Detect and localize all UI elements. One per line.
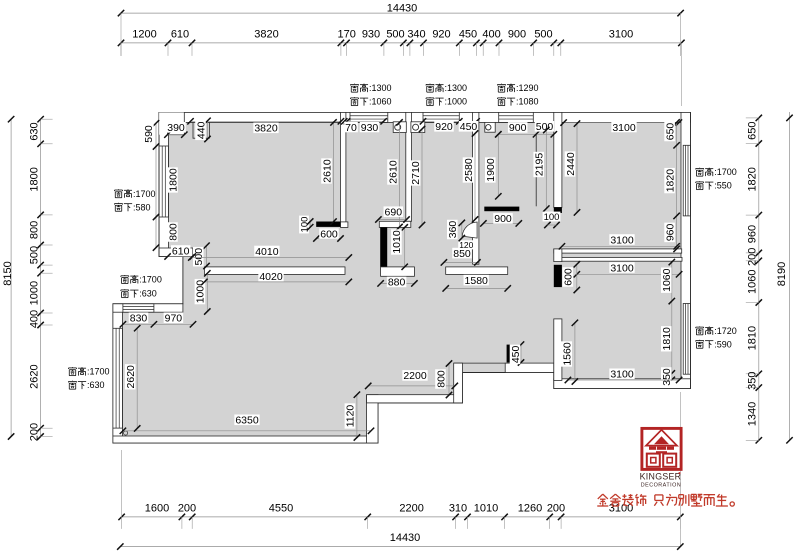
svg-text:1580: 1580 xyxy=(465,275,489,287)
svg-text:400: 400 xyxy=(482,28,500,40)
svg-text:900: 900 xyxy=(509,122,527,134)
svg-text:4020: 4020 xyxy=(259,271,283,283)
svg-text:1340: 1340 xyxy=(747,402,759,426)
svg-text:2200: 2200 xyxy=(399,503,423,515)
svg-text:2610: 2610 xyxy=(387,160,399,184)
svg-text:8150: 8150 xyxy=(2,261,14,285)
svg-text:650: 650 xyxy=(747,122,759,140)
svg-text:600: 600 xyxy=(320,228,338,240)
svg-text:2440: 2440 xyxy=(565,152,577,176)
svg-text:1800: 1800 xyxy=(28,167,40,191)
svg-text:800: 800 xyxy=(167,223,179,241)
svg-text::1700: :1700 xyxy=(133,189,156,199)
svg-text::1080: :1080 xyxy=(516,97,539,107)
svg-text::1300: :1300 xyxy=(369,83,392,93)
svg-text:900: 900 xyxy=(494,213,512,225)
svg-text:600: 600 xyxy=(563,268,575,286)
svg-text:1060: 1060 xyxy=(747,269,759,293)
svg-text:1120: 1120 xyxy=(345,405,357,428)
svg-text:1810: 1810 xyxy=(747,326,759,350)
svg-text:960: 960 xyxy=(664,223,676,241)
svg-text::1700: :1700 xyxy=(139,275,162,285)
svg-text:8190: 8190 xyxy=(776,262,788,286)
svg-text:2710: 2710 xyxy=(410,161,422,185)
svg-text:610: 610 xyxy=(171,28,189,40)
svg-text:1900: 1900 xyxy=(485,158,497,182)
svg-text:690: 690 xyxy=(385,206,403,218)
svg-text::1060: :1060 xyxy=(369,97,392,107)
svg-text::630: :630 xyxy=(139,289,157,299)
svg-text::1000: :1000 xyxy=(445,97,468,107)
svg-text:1010: 1010 xyxy=(391,230,403,254)
svg-text:14430: 14430 xyxy=(390,532,421,544)
svg-text::1700: :1700 xyxy=(714,167,737,177)
svg-text:960: 960 xyxy=(747,225,759,243)
svg-text::1300: :1300 xyxy=(445,83,468,93)
svg-text:3820: 3820 xyxy=(254,123,278,135)
svg-text:450: 450 xyxy=(460,121,478,133)
svg-text:200: 200 xyxy=(547,503,565,515)
svg-text:1000: 1000 xyxy=(28,281,40,305)
svg-text:350: 350 xyxy=(747,372,759,390)
svg-text:350: 350 xyxy=(661,368,673,386)
svg-text:4010: 4010 xyxy=(255,246,279,258)
svg-text:200: 200 xyxy=(747,248,759,266)
svg-text:14430: 14430 xyxy=(387,3,418,15)
svg-text:930: 930 xyxy=(361,122,379,134)
svg-text:1820: 1820 xyxy=(664,169,676,193)
svg-text:310: 310 xyxy=(449,503,467,515)
svg-text:4550: 4550 xyxy=(269,503,293,515)
svg-text::630: :630 xyxy=(87,380,105,390)
svg-text:120: 120 xyxy=(459,240,473,250)
svg-text:500: 500 xyxy=(534,28,552,40)
svg-text:590: 590 xyxy=(143,125,155,143)
svg-text:6350: 6350 xyxy=(235,415,259,427)
svg-text::1720: :1720 xyxy=(714,326,737,336)
svg-text:170: 170 xyxy=(338,28,356,40)
svg-text:1810: 1810 xyxy=(661,327,673,351)
svg-text:500: 500 xyxy=(193,248,205,266)
svg-text:630: 630 xyxy=(28,122,40,140)
svg-text:3100: 3100 xyxy=(610,369,634,381)
svg-text:1060: 1060 xyxy=(661,268,673,292)
svg-text:450: 450 xyxy=(510,345,522,363)
svg-text:3100: 3100 xyxy=(610,234,634,246)
svg-text:450: 450 xyxy=(459,28,477,40)
svg-text::590: :590 xyxy=(714,339,732,349)
svg-text:DECORATION: DECORATION xyxy=(641,483,682,489)
svg-text:800: 800 xyxy=(435,370,447,388)
svg-text:2200: 2200 xyxy=(403,370,427,382)
svg-text:70: 70 xyxy=(345,122,357,134)
svg-text:500: 500 xyxy=(28,246,40,264)
svg-text::1700: :1700 xyxy=(87,367,110,377)
svg-text:340: 340 xyxy=(407,28,425,40)
svg-text:440: 440 xyxy=(195,121,207,139)
svg-text:200: 200 xyxy=(28,423,40,441)
svg-text:650: 650 xyxy=(664,123,676,141)
svg-text:3820: 3820 xyxy=(254,28,278,40)
svg-text:970: 970 xyxy=(165,312,183,324)
svg-text:2195: 2195 xyxy=(533,153,545,177)
svg-text:500: 500 xyxy=(386,28,404,40)
svg-text::550: :550 xyxy=(714,181,732,191)
svg-text:100: 100 xyxy=(299,217,310,233)
svg-text:1200: 1200 xyxy=(132,28,156,40)
svg-text:1800: 1800 xyxy=(167,168,179,192)
svg-text:1260: 1260 xyxy=(518,503,542,515)
svg-text:3100: 3100 xyxy=(609,28,633,40)
svg-text:1820: 1820 xyxy=(747,167,759,191)
svg-text:1560: 1560 xyxy=(561,342,573,366)
svg-text:1000: 1000 xyxy=(195,280,207,304)
svg-text:900: 900 xyxy=(508,28,526,40)
svg-text:880: 880 xyxy=(388,277,406,289)
svg-text:KINGSER: KINGSER xyxy=(640,472,682,482)
svg-text:390: 390 xyxy=(167,122,185,134)
svg-text:100: 100 xyxy=(544,212,560,223)
svg-text::1290: :1290 xyxy=(516,83,539,93)
svg-text:830: 830 xyxy=(130,312,148,324)
svg-text:920: 920 xyxy=(432,28,450,40)
svg-text:360: 360 xyxy=(447,221,459,239)
svg-text:2580: 2580 xyxy=(463,158,475,182)
svg-text:400: 400 xyxy=(28,310,40,328)
svg-text:800: 800 xyxy=(28,221,40,239)
svg-text:930: 930 xyxy=(362,28,380,40)
svg-text::580: :580 xyxy=(133,202,151,212)
svg-text:2610: 2610 xyxy=(321,159,333,183)
svg-text:1010: 1010 xyxy=(474,503,498,515)
svg-text:3100: 3100 xyxy=(610,262,634,274)
svg-text:920: 920 xyxy=(435,121,453,133)
svg-text:200: 200 xyxy=(178,503,196,515)
svg-text:3100: 3100 xyxy=(612,122,636,134)
svg-text:2620: 2620 xyxy=(28,364,40,388)
svg-text:1600: 1600 xyxy=(145,503,169,515)
svg-text:2620: 2620 xyxy=(125,365,137,389)
svg-text:610: 610 xyxy=(172,245,190,257)
